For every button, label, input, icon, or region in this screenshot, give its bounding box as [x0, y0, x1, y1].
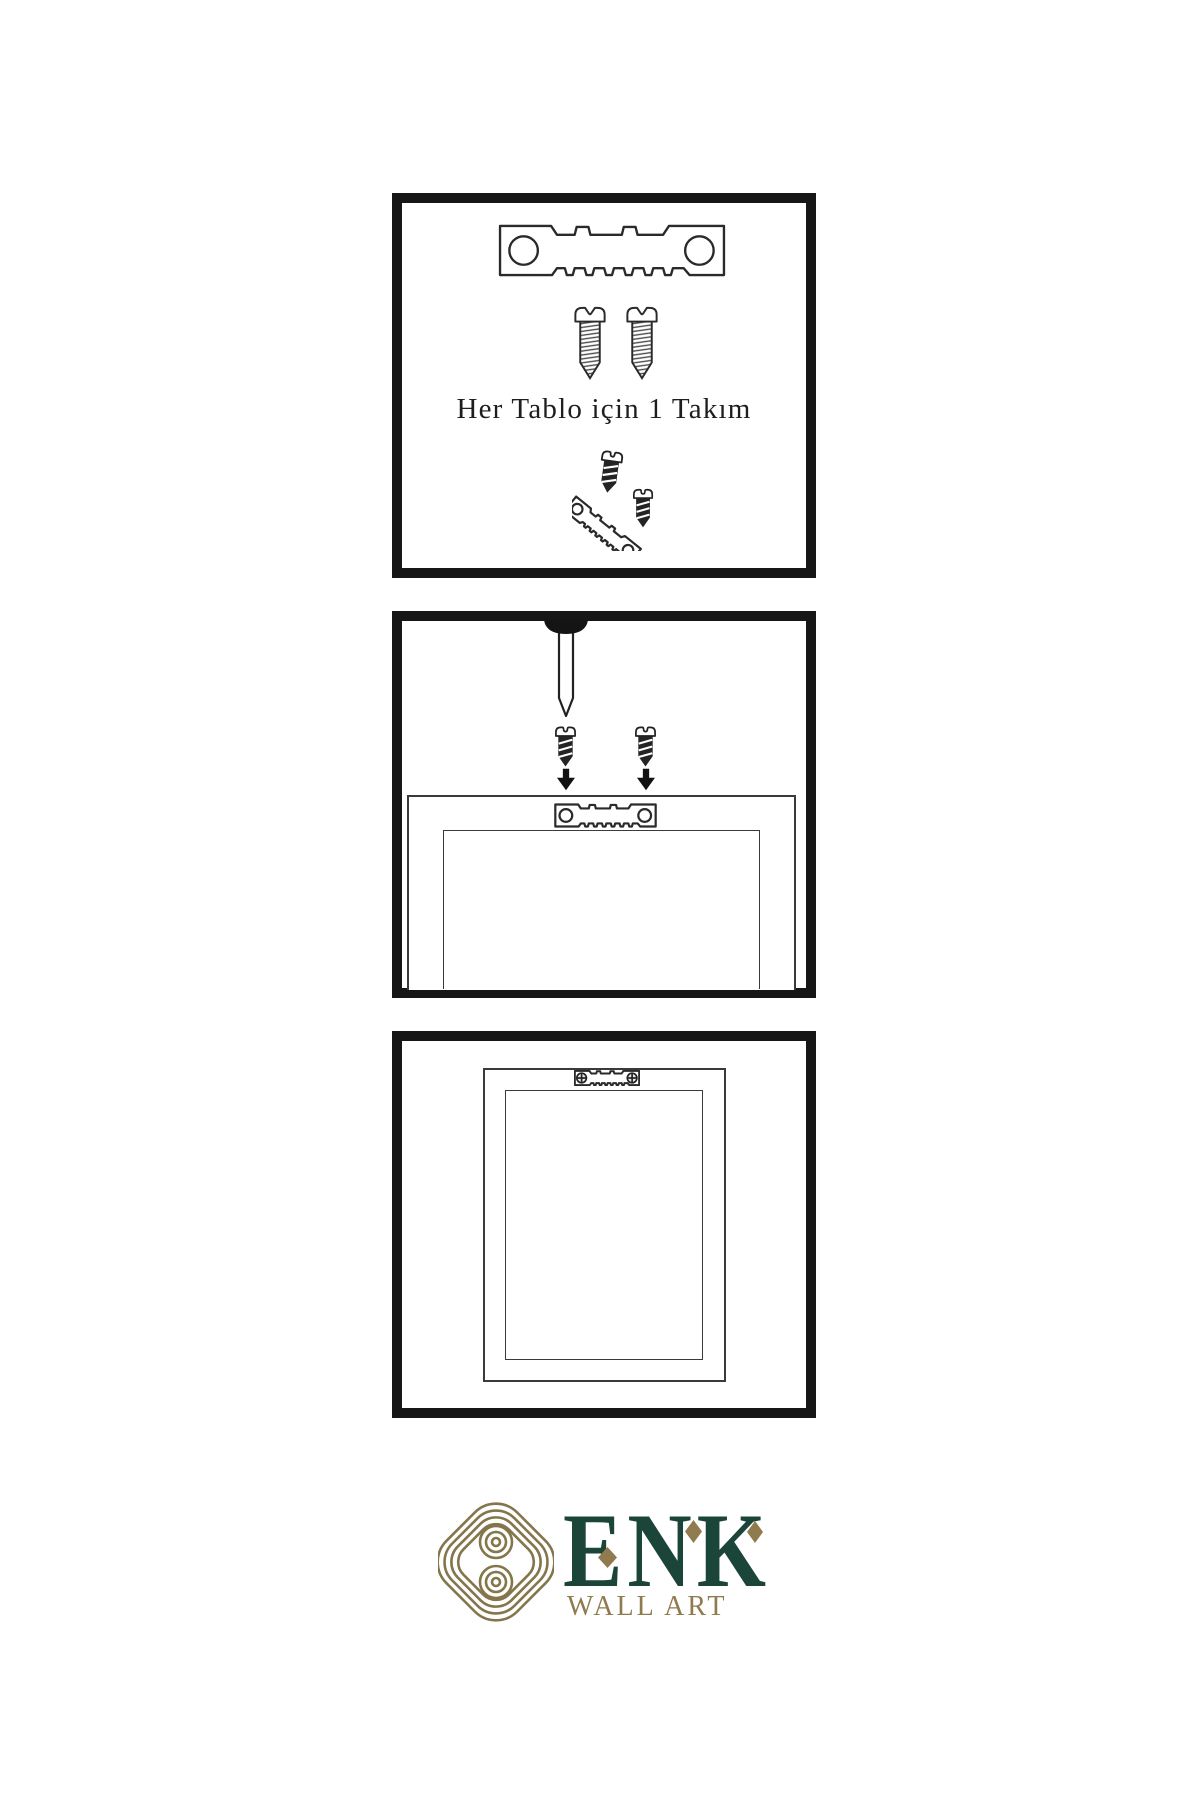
screw-with-angled-hanger-icon — [572, 449, 668, 551]
dark-screw-icon — [597, 451, 622, 493]
dark-screw-icon — [634, 490, 652, 527]
frame-back-inner — [443, 830, 760, 989]
screw-icon — [625, 304, 659, 382]
step2-panel — [392, 611, 816, 998]
nail-icon — [543, 620, 589, 720]
knot-logo-icon — [438, 1500, 554, 1624]
angled-sawtooth-hanger-icon — [572, 497, 641, 551]
installed-sawtooth-hanger-icon — [574, 1069, 640, 1087]
sawtooth-hanger-icon — [495, 223, 729, 278]
phillips-screw-head-icon — [627, 1073, 637, 1083]
instruction-sheet: Her Tablo için 1 Takım — [0, 0, 1200, 1800]
phillips-screw-head-icon — [577, 1073, 587, 1083]
step1-caption: Her Tablo için 1 Takım — [402, 393, 806, 426]
down-arrow-icon — [637, 768, 655, 791]
hung-frame-inner — [505, 1090, 703, 1360]
sawtooth-hanger-icon — [554, 803, 657, 828]
step3-panel — [392, 1031, 816, 1418]
screw-icon — [573, 304, 607, 382]
dark-screw-icon — [634, 724, 657, 769]
logo-subtitle: WALL ART — [567, 1591, 728, 1623]
step1-panel: Her Tablo için 1 Takım — [392, 193, 816, 578]
dark-screw-icon — [554, 724, 577, 769]
down-arrow-icon — [557, 768, 575, 791]
